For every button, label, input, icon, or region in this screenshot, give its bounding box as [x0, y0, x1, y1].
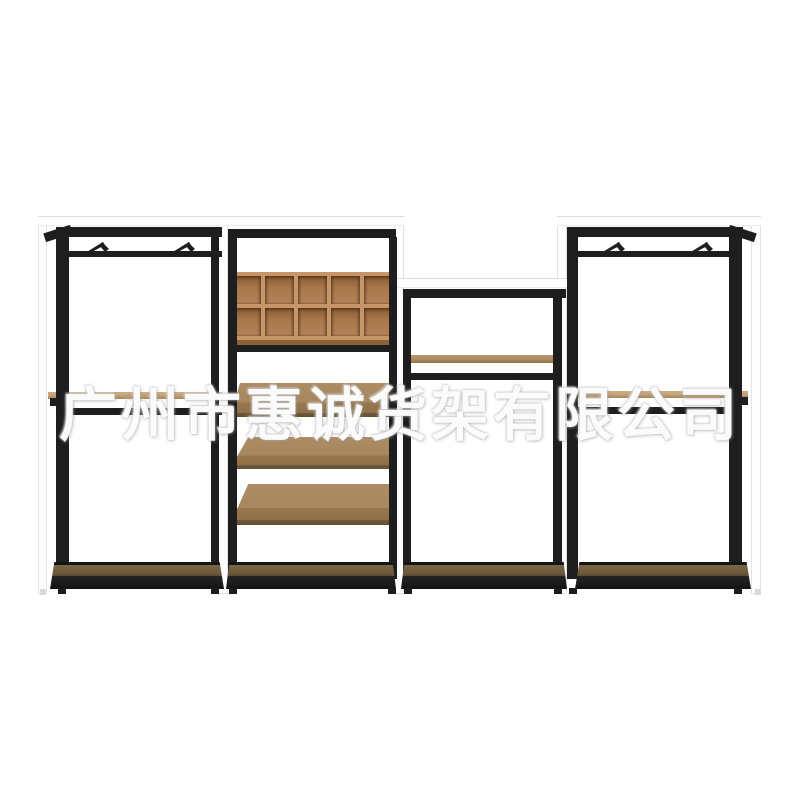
top-panel-strip-left [38, 216, 404, 226]
watermark-text: 广州市惠诚货架有限公司 [0, 368, 800, 452]
hang-hook-icon [84, 239, 110, 254]
bay3-base [401, 562, 567, 589]
bay3-wood-shelf [403, 355, 562, 363]
rack-foot [211, 588, 219, 594]
rack-foot [58, 588, 66, 594]
rack-foot [554, 588, 562, 594]
cubby-cell [331, 276, 360, 304]
bay1-base [50, 562, 224, 589]
panel-foot [755, 589, 761, 595]
bay2-base [226, 562, 396, 589]
cubby-support-bar [228, 345, 397, 352]
rack-foot [569, 588, 577, 594]
bay1-top-bar [56, 227, 222, 237]
rack-foot [388, 588, 396, 594]
bay3-top-bar [403, 289, 566, 298]
cubby-cell [265, 276, 294, 304]
hang-hook-icon [170, 239, 196, 254]
product-photo-canvas: 广州市惠诚货架有限公司 [0, 0, 800, 800]
rack-foot [404, 588, 412, 594]
rack-foot [229, 588, 237, 594]
cubby-cell [298, 308, 327, 336]
cubby-cell [331, 308, 360, 336]
bay4-top-bar [567, 227, 743, 237]
panel-foot [40, 589, 46, 595]
cubby-cell [265, 308, 294, 336]
cubby-grid [228, 272, 397, 345]
hang-hook-icon [600, 239, 626, 254]
top-panel-strip-center [394, 278, 567, 288]
cubby-cell [298, 276, 327, 304]
bay2-top-bar [228, 229, 396, 238]
bay4-base [575, 562, 751, 589]
rack-foot [734, 588, 742, 594]
hang-hook-icon [688, 239, 714, 254]
shoe-shelf-3 [230, 484, 396, 525]
